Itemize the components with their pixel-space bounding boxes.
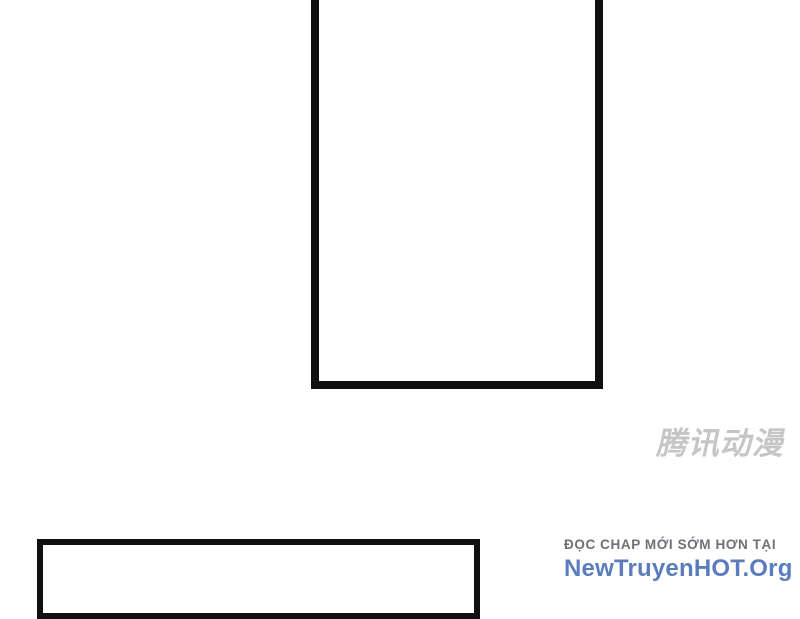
site-credit-url: NewTruyenHOT.Org xyxy=(564,556,793,582)
comic-panel-top xyxy=(311,0,603,389)
comic-page: 腾讯动漫 ĐỌC CHAP MỚI SỚM HƠN TẠI NewTruyenH… xyxy=(0,0,800,599)
site-credit-block: ĐỌC CHAP MỚI SỚM HƠN TẠI NewTruyenHOT.Or… xyxy=(564,537,793,582)
site-credit-tagline: ĐỌC CHAP MỚI SỚM HƠN TẠI xyxy=(564,537,793,553)
tencent-comics-watermark-logo: 腾讯动漫 xyxy=(654,425,800,463)
comic-panel-bottom xyxy=(37,539,480,619)
